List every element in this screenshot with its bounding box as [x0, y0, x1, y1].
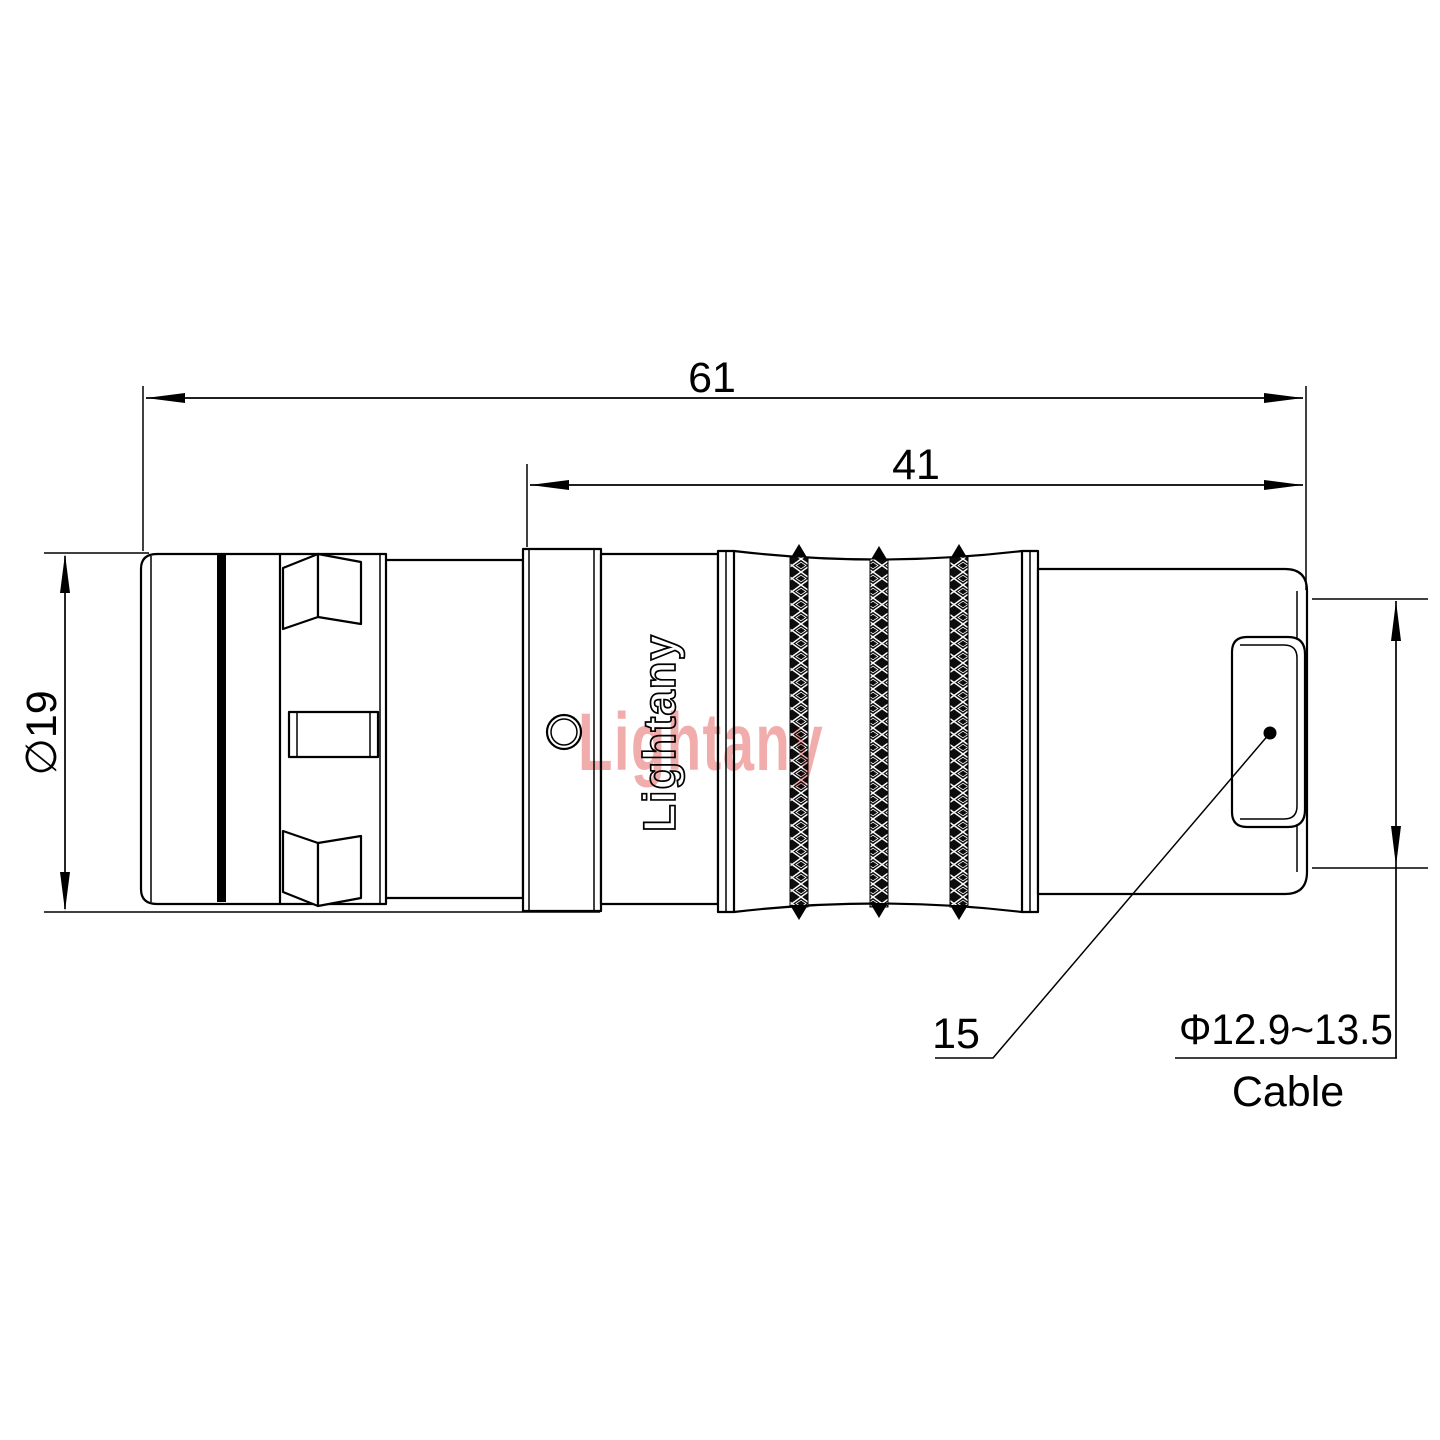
ref-text-15: 15	[932, 1010, 980, 1058]
dimension-grip-length: 41	[527, 441, 1303, 547]
top-latch-right-face	[318, 554, 361, 624]
vent-hole-outer	[547, 715, 581, 749]
arrowhead-dia19-top	[60, 554, 70, 593]
technical-drawing-page: Lightany	[0, 0, 1440, 1440]
arrowhead-cable-bottom	[1391, 826, 1401, 866]
knurl-band-2	[870, 546, 888, 918]
center-slot	[289, 712, 378, 757]
dim-text-dia19: ∅19	[18, 690, 66, 775]
cable-diameter-text: Φ12.9~13.5	[1179, 1006, 1393, 1054]
top-latch-key	[283, 554, 361, 629]
arrowhead-dia19-bottom	[60, 872, 70, 911]
front-black-band	[217, 555, 226, 902]
bottom-latch-right-face	[318, 836, 361, 906]
cable-entry	[1232, 637, 1305, 827]
knurl-band-2-body	[870, 559, 888, 907]
center-slot-key	[289, 712, 378, 757]
mid-ring	[386, 560, 523, 898]
dim-text-41: 41	[892, 441, 940, 489]
knurl-band-3	[950, 544, 968, 920]
arrowhead-61-right	[1264, 393, 1303, 403]
bottom-latch-left-face	[283, 831, 318, 906]
arrowhead-61-left	[146, 393, 185, 403]
rear-boot	[1038, 569, 1307, 894]
arrowhead-41-right	[1264, 480, 1303, 490]
watermark: Lightany	[578, 697, 824, 788]
connector-drawing: Lightany	[0, 0, 1440, 1440]
dim-text-61: 61	[688, 354, 736, 402]
top-latch-left-face	[283, 554, 318, 629]
knurl-band-3-body	[950, 557, 968, 907]
cable-label-text: Cable	[1232, 1068, 1344, 1116]
knurl-band-1-bottom-tip	[790, 905, 808, 920]
knurl-band-2-bottom-tip	[870, 903, 888, 918]
arrowhead-cable-top	[1391, 601, 1401, 641]
bottom-latch-key	[283, 831, 361, 906]
watermark-text: Lightany	[578, 697, 824, 788]
front-shell	[141, 554, 386, 906]
knurl-band-3-bottom-tip	[950, 905, 968, 920]
arrowhead-41-left	[530, 480, 569, 490]
